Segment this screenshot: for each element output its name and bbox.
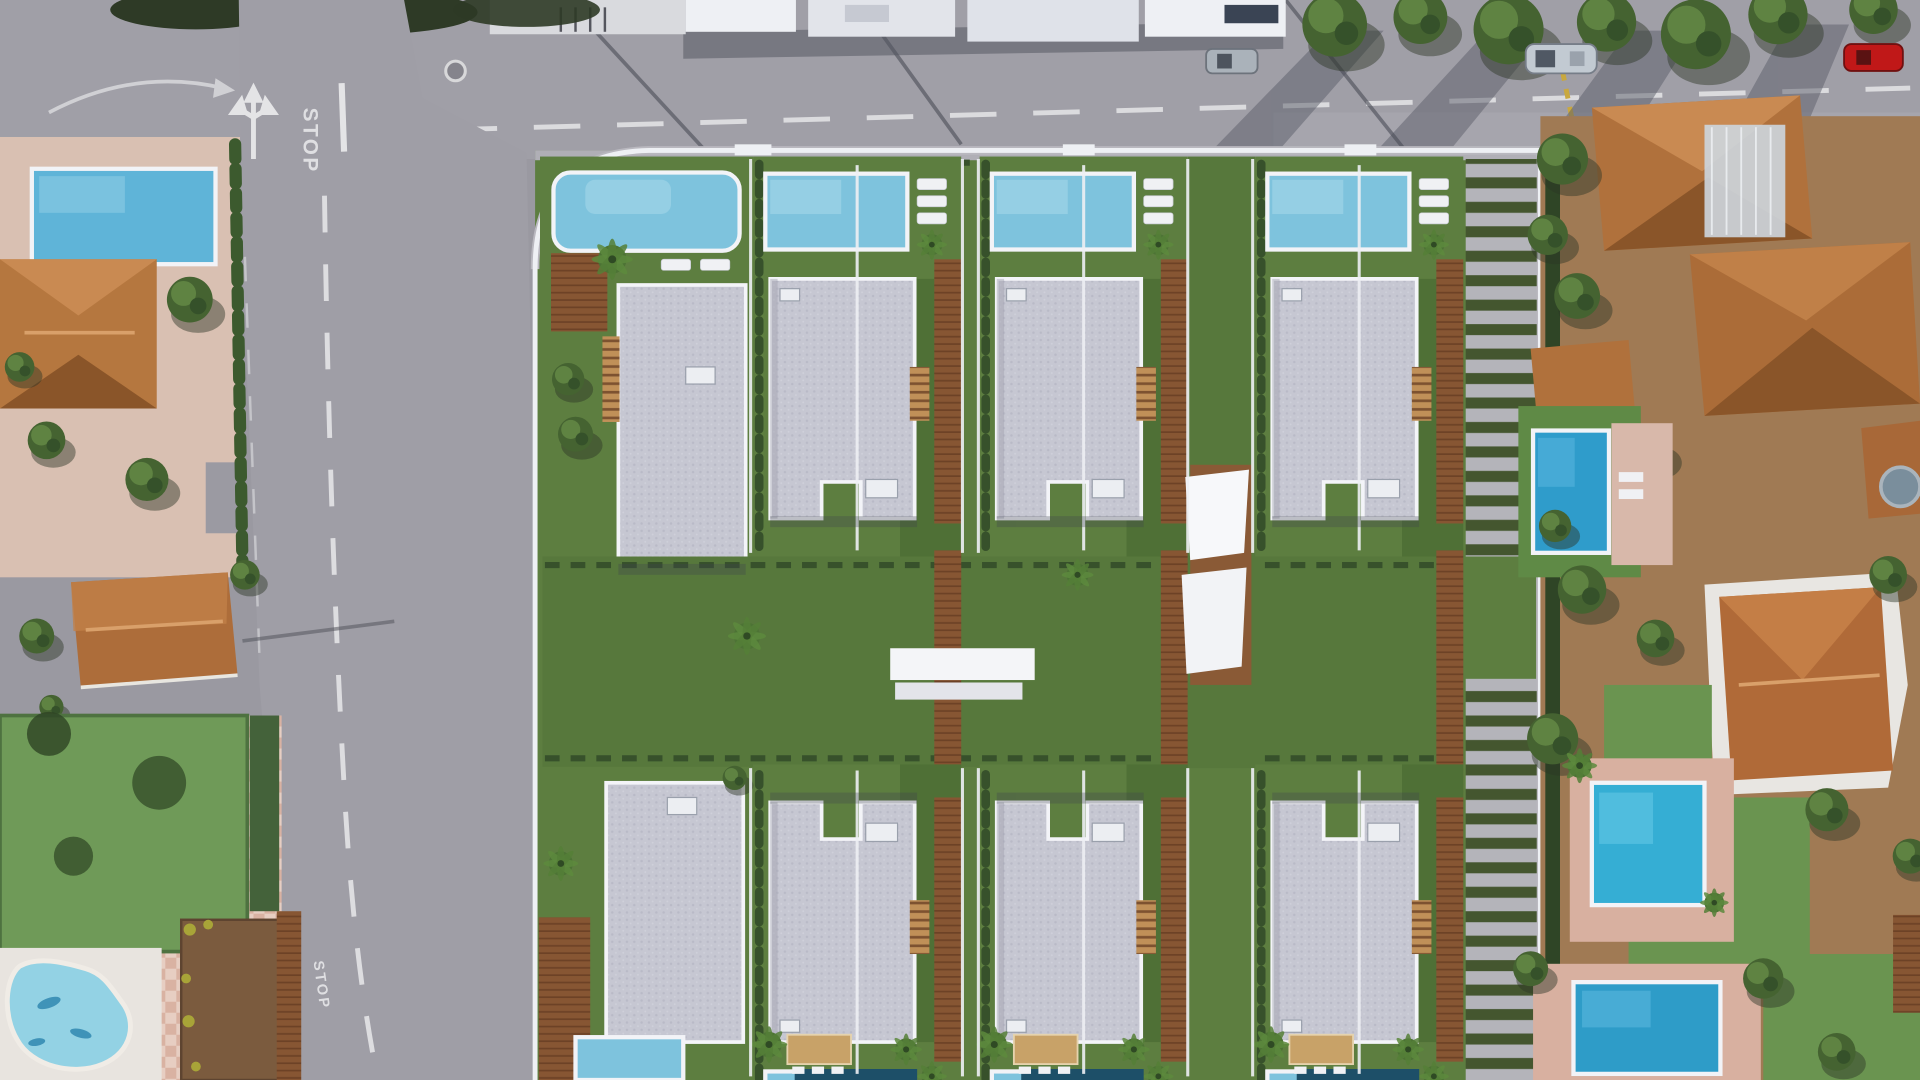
pergola — [787, 1035, 851, 1074]
villa-top-left — [0, 137, 242, 577]
villa-pool-a — [1518, 406, 1672, 577]
car-red — [1844, 44, 1903, 71]
aerial-photo-stage: STOP STOP — [0, 0, 1920, 1080]
right-neighbourhood — [1513, 95, 1920, 1080]
centre-strip — [542, 550, 1463, 801]
villa-terracotta-2 — [1690, 242, 1920, 416]
kidney-pool — [0, 948, 162, 1080]
development-complex — [535, 144, 1540, 1080]
shade-sail-2 — [1182, 568, 1247, 674]
pergola — [1014, 1035, 1078, 1074]
villa-pool-b — [1562, 748, 1734, 942]
car-silver — [1526, 44, 1597, 73]
aerial-photo: STOP STOP — [0, 0, 1920, 1080]
corner-unit-top — [540, 157, 753, 567]
corner-unit-bottom — [539, 766, 754, 1080]
car-grey — [1206, 49, 1257, 73]
left-bottom-grounds — [0, 712, 301, 1080]
pergola — [1289, 1035, 1353, 1074]
shade-sail-1 — [1185, 470, 1249, 561]
stop-bar — [342, 83, 344, 151]
villa-terracotta-1 — [1592, 95, 1812, 250]
timber-fence — [277, 911, 301, 1080]
hedge-striped-garden-bottom — [1466, 679, 1537, 1080]
manhole-cover — [446, 61, 466, 81]
shade-sail-terrace — [1182, 157, 1255, 769]
stop-road-marking: STOP — [299, 108, 322, 174]
central-walkway — [890, 648, 1034, 680]
